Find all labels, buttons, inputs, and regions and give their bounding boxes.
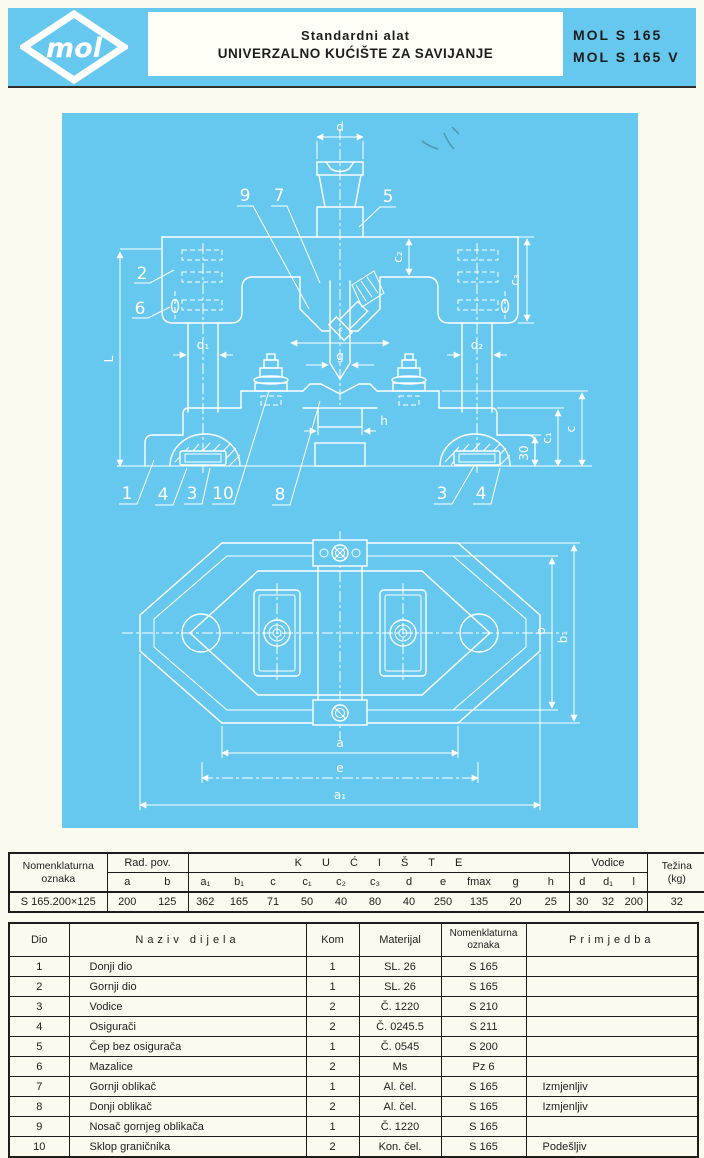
- technical-drawing-panel: d: [62, 113, 638, 828]
- spec-subheader: c₂: [324, 873, 358, 893]
- part-materijal: Al. čel.: [359, 1077, 441, 1097]
- part-label-10: 10: [212, 484, 234, 504]
- spec-value: 80: [358, 892, 392, 912]
- part-kom: 1: [306, 1077, 359, 1097]
- title-line-2: UNIVERZALNO KUĆIŠTE ZA SAVIJANJE: [218, 46, 494, 61]
- part-materijal: Al. čel.: [359, 1097, 441, 1117]
- part-dio: 4: [9, 1017, 69, 1037]
- parts-row: 2 Gornji dio 1 SL. 26 S 165: [9, 977, 698, 997]
- part-oznaka: Pz 6: [441, 1057, 526, 1077]
- spec-subheader: g: [498, 873, 533, 893]
- dim-label-c1: c₁: [540, 432, 554, 444]
- spec-value: 165: [222, 892, 256, 912]
- spec-value: 40: [392, 892, 426, 912]
- part-kom: 2: [306, 1017, 359, 1037]
- header: mol Standardni alat UNIVERZALNO KUĆIŠTE …: [8, 8, 696, 88]
- parts-row: 5 Čep bez osigurača 1 Č. 0545 S 200: [9, 1037, 698, 1057]
- part-kom: 1: [306, 1037, 359, 1057]
- spec-value: 200: [107, 892, 147, 912]
- parts-header-row: Dio Naziv dijela Kom Materijal Nomenklat…: [9, 923, 698, 957]
- part-oznaka: S 210: [441, 997, 526, 1017]
- part-primjedba: Izmjenljiv: [526, 1097, 698, 1117]
- bushing-right: [440, 434, 510, 466]
- part-primjedba: [526, 997, 698, 1017]
- front-dimensions: c₂ c₃ d₁ d₂ f g h: [102, 237, 588, 466]
- parts-row: 7 Gornji oblikač 1 Al. čel. S 165 Izmjen…: [9, 1077, 698, 1097]
- spec-header-vodice: Vodice: [569, 853, 647, 873]
- spec-data-row: S 165.200×125 200 125 362 165 71 50 40 8…: [9, 892, 704, 912]
- dim-label-c: c: [564, 426, 578, 433]
- title-line-1: Standardni alat: [301, 28, 410, 43]
- part-primjedba: [526, 1057, 698, 1077]
- parts-row: 1 Donji dio 1 SL. 26 S 165: [9, 957, 698, 977]
- part-dio: 10: [9, 1137, 69, 1158]
- dim-label-a: a: [336, 736, 343, 750]
- part-kom: 1: [306, 1117, 359, 1137]
- part-oznaka: S 165: [441, 1117, 526, 1137]
- spec-subheader: d: [569, 873, 595, 893]
- catalog-page: mol Standardni alat UNIVERZALNO KUĆIŠTE …: [0, 0, 704, 1158]
- part-primjedba: [526, 1037, 698, 1057]
- parts-row: 10 Sklop graničnika 2 Kon. čel. S 165 Po…: [9, 1137, 698, 1158]
- spec-header-rad-pov: Rad. pov.: [107, 853, 188, 873]
- part-primjedba: [526, 1117, 698, 1137]
- dim-label-c3: c₃: [508, 274, 522, 286]
- part-primjedba: Podešljiv: [526, 1137, 698, 1158]
- dim-label-g: g: [336, 349, 344, 363]
- part-label-4: 4: [158, 485, 169, 505]
- spec-value: 71: [256, 892, 290, 912]
- technical-drawing: d: [62, 113, 638, 828]
- spec-value: 362: [188, 892, 222, 912]
- part-naziv: Čep bez osigurača: [69, 1037, 306, 1057]
- parts-row: 6 Mazalice 2 Ms Pz 6: [9, 1057, 698, 1077]
- part-label-3: 3: [187, 484, 198, 504]
- spec-value: 40: [324, 892, 358, 912]
- model-number-1: MOL S 165: [573, 24, 696, 46]
- part-kom: 1: [306, 957, 359, 977]
- part-label-7: 7: [274, 186, 285, 206]
- dim-label-d1: d₁: [197, 338, 210, 352]
- part-materijal: Ms: [359, 1057, 441, 1077]
- spec-oznaka: S 165.200×125: [9, 892, 107, 912]
- front-section-view: d: [102, 120, 592, 505]
- part-oznaka: S 165: [441, 1077, 526, 1097]
- part-label-6: 6: [135, 299, 146, 319]
- dim-label-30: 30: [517, 445, 531, 460]
- dim-label-e: e: [336, 761, 343, 775]
- base-slot: [315, 443, 365, 466]
- spec-value: 135: [460, 892, 498, 912]
- spec-subheader: b: [147, 873, 188, 893]
- dim-label-a1: a₁: [334, 788, 346, 802]
- dim-label-c2: c₂: [391, 251, 405, 263]
- parts-header-kom: Kom: [306, 923, 359, 957]
- part-materijal: SL. 26: [359, 957, 441, 977]
- part-naziv: Gornji oblikač: [69, 1077, 306, 1097]
- spec-value: 25: [533, 892, 569, 912]
- parts-row: 4 Osigurači 2 Č. 0245.5 S 211: [9, 1017, 698, 1037]
- bushing-left: [170, 434, 240, 466]
- part-oznaka: S 200: [441, 1037, 526, 1057]
- part-label-3b: 3: [437, 484, 448, 504]
- spec-value: 30: [569, 892, 595, 912]
- spec-subheader: a: [107, 873, 147, 893]
- part-naziv: Mazalice: [69, 1057, 306, 1077]
- spec-header-tezina: Težina (kg): [647, 853, 704, 892]
- part-kom: 2: [306, 1097, 359, 1117]
- parts-header-primjedba: Primjedba: [526, 923, 698, 957]
- spec-subheader: fmax: [460, 873, 498, 893]
- spec-subheader: a₁: [188, 873, 222, 893]
- part-kom: 2: [306, 1057, 359, 1077]
- parts-header-oznaka: Nomenklaturna oznaka: [441, 923, 526, 957]
- die-insert: [318, 408, 362, 427]
- dim-label-d2: d₂: [471, 338, 484, 352]
- spec-subheader: d: [392, 873, 426, 893]
- spec-value: 32: [647, 892, 704, 912]
- part-primjedba: [526, 977, 698, 997]
- part-oznaka: S 165: [441, 977, 526, 997]
- logo-box: mol: [8, 8, 140, 86]
- plan-view: b b₁ a e a₁: [122, 531, 580, 810]
- part-label-5: 5: [383, 187, 394, 207]
- dim-label-h: h: [380, 414, 388, 428]
- part-naziv: Vodice: [69, 997, 306, 1017]
- dim-label-d: d: [336, 120, 344, 134]
- plan-dimensions: b b₁ a e a₁: [140, 543, 580, 810]
- part-materijal: Č. 0245.5: [359, 1017, 441, 1037]
- parts-row: 3 Vodice 2 Č. 1220 S 210: [9, 997, 698, 1017]
- spec-value: 50: [290, 892, 324, 912]
- spec-table: Nomenklaturna oznaka Rad. pov. KUĆIŠTE V…: [8, 852, 704, 913]
- spec-header-kuciste: KUĆIŠTE: [188, 853, 569, 873]
- part-naziv: Gornji dio: [69, 977, 306, 997]
- part-naziv: Sklop graničnika: [69, 1137, 306, 1158]
- part-materijal: Kon. čel.: [359, 1137, 441, 1158]
- spec-subheader: l: [621, 873, 647, 893]
- part-materijal: Č. 1220: [359, 997, 441, 1017]
- part-naziv: Donji oblikač: [69, 1097, 306, 1117]
- part-dio: 3: [9, 997, 69, 1017]
- part-label-4b: 4: [476, 484, 487, 504]
- part-dio: 1: [9, 957, 69, 977]
- part-kom: 2: [306, 1137, 359, 1158]
- spec-value: 200: [621, 892, 647, 912]
- part-label-9: 9: [240, 186, 251, 206]
- spec-subheader-row: a b a₁ b₁ c c₁ c₂ c₃ d e fmax g h d d₁ l: [9, 873, 704, 893]
- part-dio: 2: [9, 977, 69, 997]
- spec-value: 250: [426, 892, 460, 912]
- spec-header-nomenklaturna: Nomenklaturna oznaka: [9, 853, 107, 892]
- part-dio: 6: [9, 1057, 69, 1077]
- part-naziv: Donji dio: [69, 957, 306, 977]
- spec-subheader: c₁: [290, 873, 324, 893]
- spec-group-header-row: Nomenklaturna oznaka Rad. pov. KUĆIŠTE V…: [9, 853, 704, 873]
- part-dio: 5: [9, 1037, 69, 1057]
- spec-subheader: c₃: [358, 873, 392, 893]
- part-callouts: 9 7 5 2 6 1 4 3 10 8 3: [119, 186, 500, 505]
- part-oznaka: S 165: [441, 1137, 526, 1158]
- dim-label-L: L: [102, 355, 116, 362]
- spec-subheader: d₁: [595, 873, 621, 893]
- part-materijal: SL. 26: [359, 977, 441, 997]
- spec-subheader: c: [256, 873, 290, 893]
- parts-table: Dio Naziv dijela Kom Materijal Nomenklat…: [8, 922, 699, 1158]
- dim-label-b1: b₁: [556, 631, 570, 644]
- part-materijal: Č. 1220: [359, 1117, 441, 1137]
- part-label-1: 1: [122, 484, 133, 504]
- part-dio: 9: [9, 1117, 69, 1137]
- spec-value: 125: [147, 892, 188, 912]
- parts-row: 8 Donji oblikač 2 Al. čel. S 165 Izmjenl…: [9, 1097, 698, 1117]
- logo-word: mol: [46, 33, 103, 64]
- part-dio: 8: [9, 1097, 69, 1117]
- parts-header-materijal: Materijal: [359, 923, 441, 957]
- title-box: Standardni alat UNIVERZALNO KUĆIŠTE ZA S…: [148, 12, 563, 76]
- part-kom: 1: [306, 977, 359, 997]
- parts-header-naziv: Naziv dijela: [69, 923, 306, 957]
- part-primjedba: [526, 1017, 698, 1037]
- model-number-2: MOL S 165 V: [573, 46, 696, 68]
- mol-logo: mol: [20, 10, 128, 84]
- part-dio: 7: [9, 1077, 69, 1097]
- part-naziv: Nosač gornjeg oblikača: [69, 1117, 306, 1137]
- spec-subheader: e: [426, 873, 460, 893]
- part-oznaka: S 165: [441, 957, 526, 977]
- part-kom: 2: [306, 997, 359, 1017]
- parts-header-dio: Dio: [9, 923, 69, 957]
- parts-row: 9 Nosač gornjeg oblikača 1 Č. 1220 S 165: [9, 1117, 698, 1137]
- model-box: MOL S 165 MOL S 165 V: [563, 8, 696, 86]
- stop-assembly-right: [392, 354, 426, 391]
- pencil-scribble: [422, 127, 459, 149]
- part-naziv: Osigurači: [69, 1017, 306, 1037]
- part-label-8: 8: [275, 485, 286, 505]
- part-primjedba: [526, 957, 698, 977]
- spec-value: 32: [595, 892, 621, 912]
- part-oznaka: S 211: [441, 1017, 526, 1037]
- part-materijal: Č. 0545: [359, 1037, 441, 1057]
- spec-subheader: h: [533, 873, 569, 893]
- stop-assembly-left: [254, 354, 288, 391]
- spec-subheader: b₁: [222, 873, 256, 893]
- part-oznaka: S 165: [441, 1097, 526, 1117]
- dim-label-b: b: [534, 627, 548, 635]
- part-label-2: 2: [137, 264, 148, 284]
- spec-value: 20: [498, 892, 533, 912]
- part-primjedba: Izmjenljiv: [526, 1077, 698, 1097]
